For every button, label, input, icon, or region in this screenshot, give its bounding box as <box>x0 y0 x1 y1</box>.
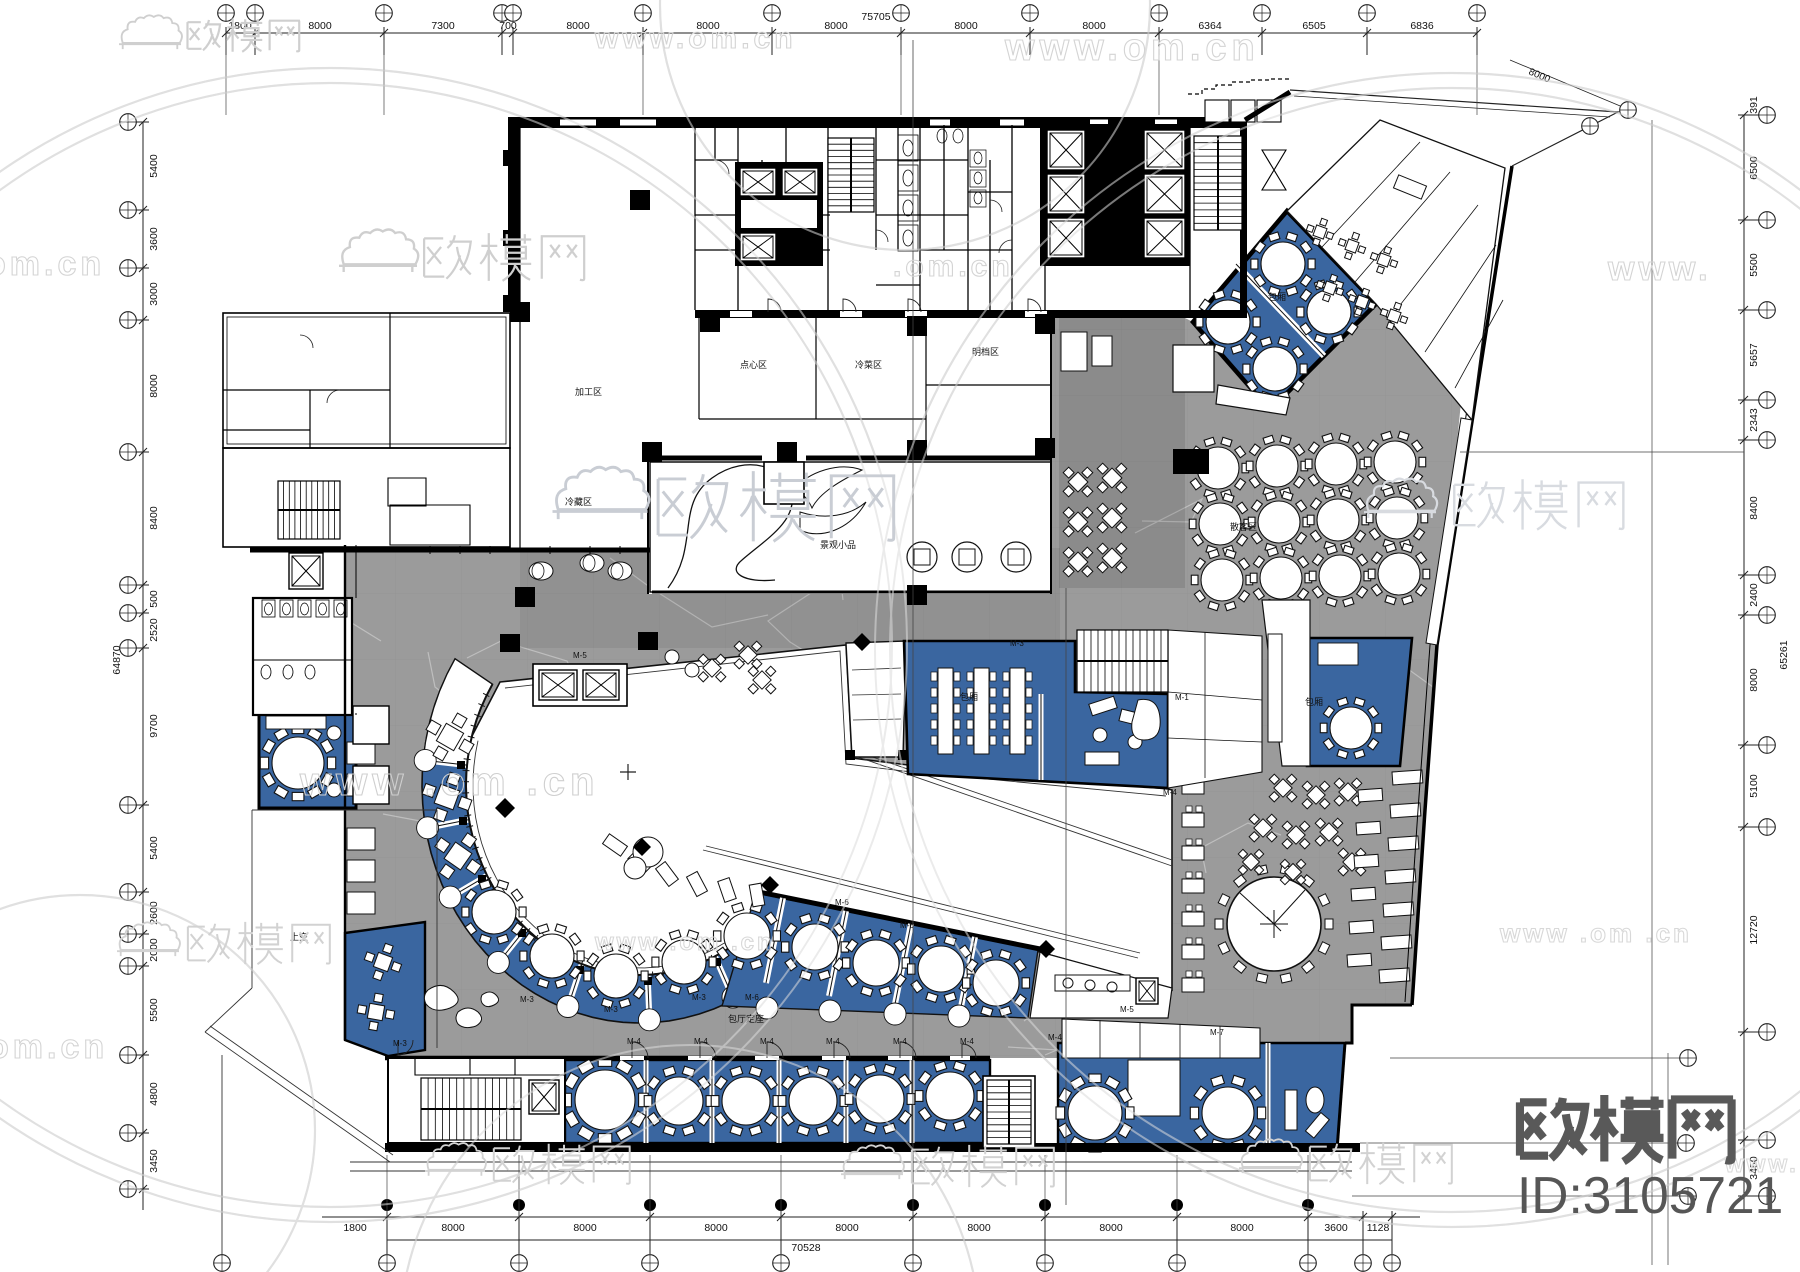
svg-text:M-3: M-3 <box>1010 639 1024 648</box>
svg-text:www.om.cn: www.om.cn <box>1004 27 1260 69</box>
svg-text:391: 391 <box>1748 96 1760 114</box>
svg-text:8000: 8000 <box>954 20 978 32</box>
svg-text:3450: 3450 <box>148 1149 160 1173</box>
svg-text:om.cn: om.cn <box>0 1028 108 1066</box>
svg-text:8400: 8400 <box>148 506 160 530</box>
svg-text:500: 500 <box>148 590 160 608</box>
svg-text:5657: 5657 <box>1748 343 1760 367</box>
svg-text:www .om .cn: www .om .cn <box>1499 918 1692 948</box>
svg-text:6505: 6505 <box>1302 20 1326 32</box>
svg-text:www .om .cn: www .om .cn <box>594 929 775 956</box>
svg-text:65261: 65261 <box>1778 640 1790 669</box>
svg-text:.om.cn: .om.cn <box>893 250 1014 283</box>
svg-text:8000: 8000 <box>308 20 332 32</box>
svg-text:M-3: M-3 <box>692 993 706 1002</box>
svg-text:M-4: M-4 <box>893 1037 907 1046</box>
svg-text:8000: 8000 <box>704 1222 728 1234</box>
svg-text:M-3: M-3 <box>604 1005 618 1014</box>
svg-text:3000: 3000 <box>148 282 160 306</box>
svg-text:8000: 8000 <box>1230 1222 1254 1234</box>
svg-text:2343: 2343 <box>1748 408 1760 432</box>
svg-text:冷菜区: 冷菜区 <box>855 359 882 370</box>
svg-text:点心区: 点心区 <box>740 360 767 370</box>
svg-text:M-4: M-4 <box>826 1037 840 1046</box>
svg-text:8000: 8000 <box>148 374 160 398</box>
svg-text:8000: 8000 <box>824 20 848 32</box>
svg-text:散客区: 散客区 <box>1230 521 1257 532</box>
svg-text:M-3: M-3 <box>393 1039 407 1048</box>
svg-text:www .om .cn: www .om .cn <box>299 760 599 804</box>
svg-text:8000: 8000 <box>1099 1222 1123 1234</box>
svg-text:8000: 8000 <box>835 1222 859 1234</box>
svg-text:M-5: M-5 <box>1120 1005 1134 1014</box>
svg-text:8000: 8000 <box>441 1222 465 1234</box>
svg-text:5400: 5400 <box>148 154 160 178</box>
svg-text:5100: 5100 <box>1748 774 1760 798</box>
svg-text:1800: 1800 <box>343 1222 367 1234</box>
svg-text:M-6: M-6 <box>745 993 759 1002</box>
svg-text:2400: 2400 <box>1748 583 1760 607</box>
svg-text:5500: 5500 <box>148 998 160 1022</box>
svg-text:3600: 3600 <box>1324 1222 1348 1234</box>
svg-text:www.: www. <box>1607 250 1712 288</box>
svg-text:M-4: M-4 <box>627 1037 641 1046</box>
svg-text:8400: 8400 <box>1748 496 1760 520</box>
svg-text:景观小品: 景观小品 <box>820 540 856 550</box>
svg-text:M-4: M-4 <box>1163 788 1177 797</box>
svg-text:8000: 8000 <box>573 1222 597 1234</box>
svg-text:6836: 6836 <box>1410 20 1434 32</box>
svg-text:8000: 8000 <box>566 20 590 32</box>
svg-text:M-4: M-4 <box>960 1037 974 1046</box>
svg-text:M-4: M-4 <box>760 1037 774 1046</box>
svg-text:包厢: 包厢 <box>960 691 978 702</box>
svg-text:3600: 3600 <box>148 227 160 251</box>
svg-text:M-6: M-6 <box>900 921 914 930</box>
svg-text:M-7: M-7 <box>1210 1028 1224 1037</box>
svg-text:M-3: M-3 <box>520 995 534 1004</box>
svg-text:M-5: M-5 <box>573 651 587 660</box>
svg-text:ID:3105721: ID:3105721 <box>1517 1166 1783 1224</box>
svg-text:包厢: 包厢 <box>1305 696 1323 707</box>
svg-text:8000: 8000 <box>967 1222 991 1234</box>
svg-text:om.cn: om.cn <box>0 245 105 283</box>
svg-text:70528: 70528 <box>791 1242 820 1254</box>
svg-text:75705: 75705 <box>861 11 890 23</box>
svg-text:www.om.cn: www.om.cn <box>594 22 797 55</box>
svg-text:7300: 7300 <box>431 20 455 32</box>
svg-text:8000: 8000 <box>1748 668 1760 692</box>
svg-text:9700: 9700 <box>148 714 160 738</box>
svg-text:12720: 12720 <box>1748 915 1760 944</box>
svg-text:M-4: M-4 <box>1048 1033 1062 1042</box>
svg-text:M-1: M-1 <box>1175 693 1189 702</box>
svg-text:冷藏区: 冷藏区 <box>565 496 592 507</box>
svg-text:5400: 5400 <box>148 836 160 860</box>
svg-text:2520: 2520 <box>148 618 160 642</box>
svg-text:5500: 5500 <box>1748 253 1760 277</box>
svg-text:4800: 4800 <box>148 1082 160 1106</box>
svg-text:包厢: 包厢 <box>1268 291 1286 302</box>
svg-text:加工区: 加工区 <box>575 387 602 397</box>
